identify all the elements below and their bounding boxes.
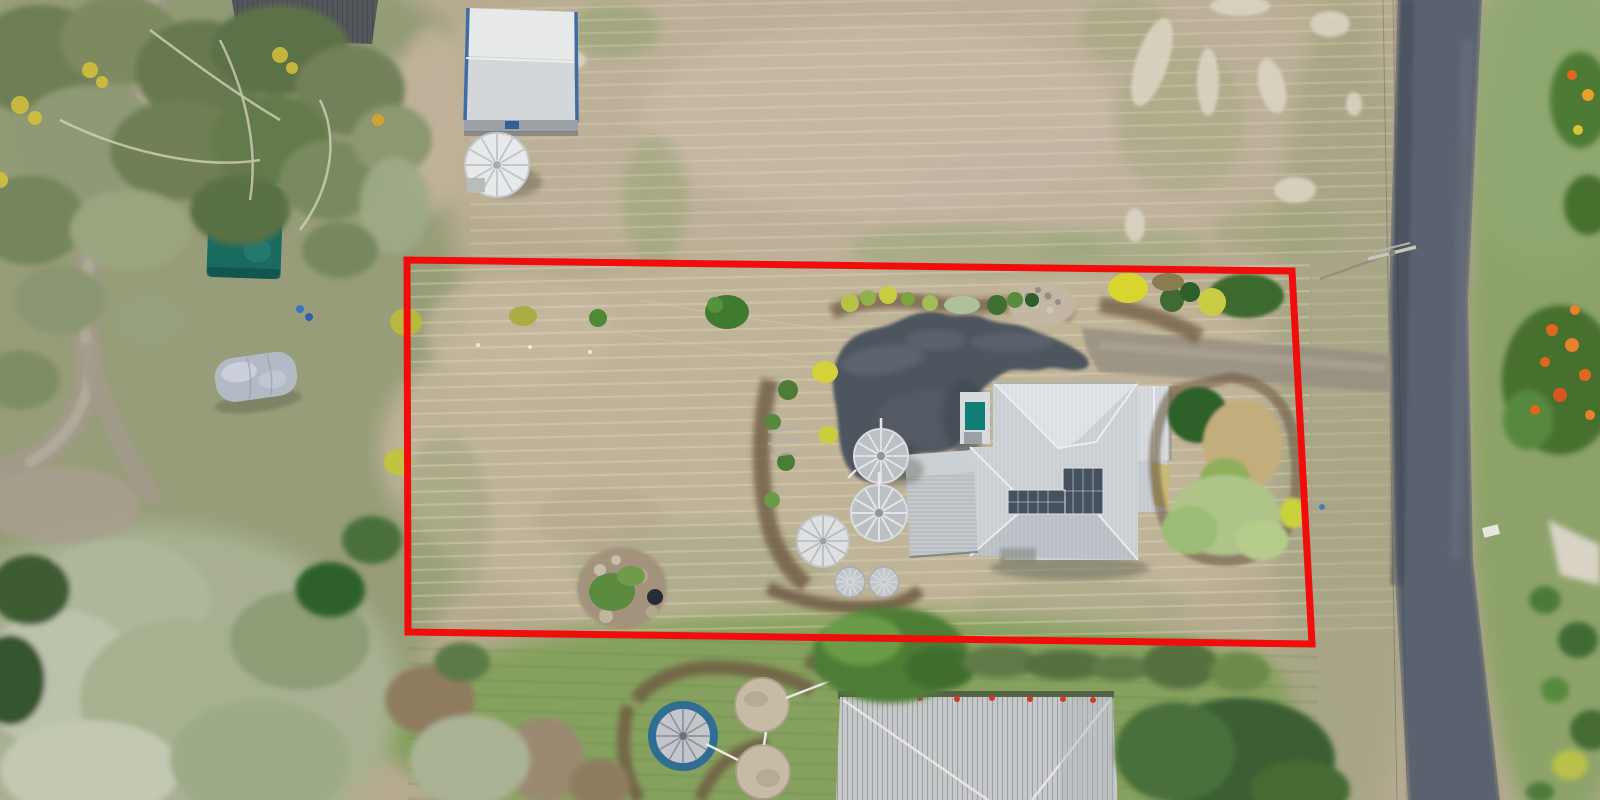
- blue-object: [305, 313, 313, 321]
- plunge-pool: [960, 392, 990, 444]
- blue-object: [1319, 504, 1325, 510]
- blue-object: [296, 305, 304, 313]
- shed-platform: [467, 178, 485, 192]
- rock-mound: [577, 547, 667, 629]
- bottom-house: [836, 691, 1118, 800]
- yellow-shrub: [812, 361, 838, 383]
- fire-pit: [647, 589, 663, 605]
- yellow-shrub: [1108, 273, 1148, 303]
- aerial-property-photo: [0, 0, 1600, 800]
